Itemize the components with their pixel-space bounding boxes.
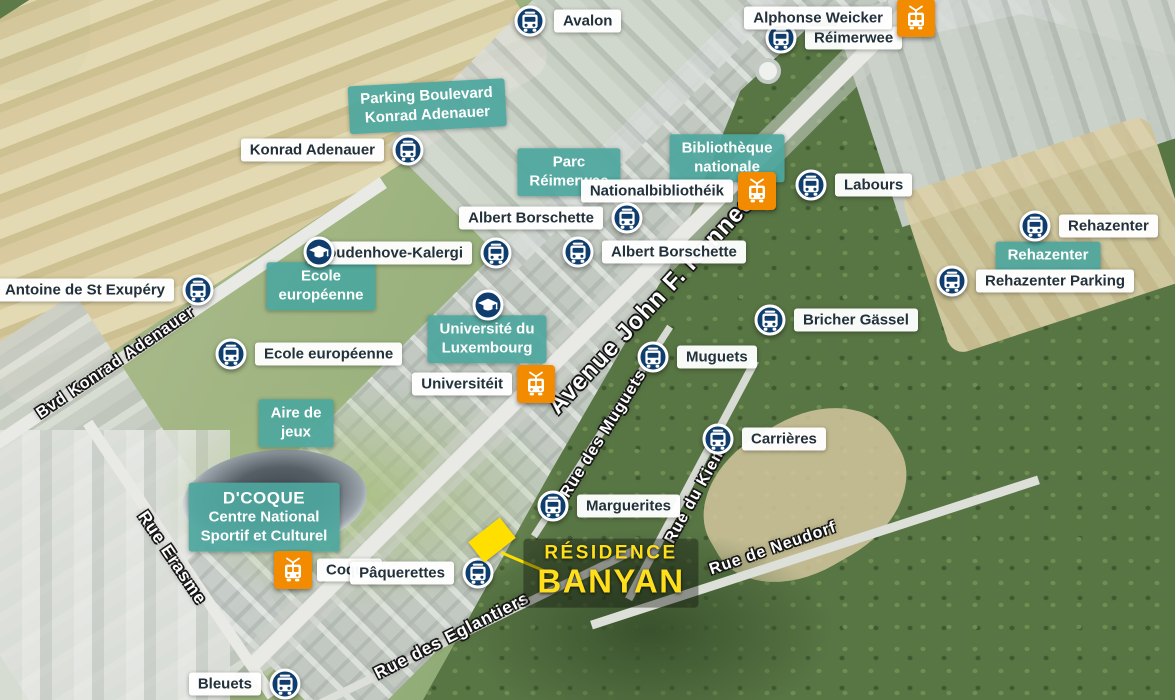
bus-icon: [216, 339, 247, 370]
place-label-line: européenne: [278, 286, 363, 305]
graduation-cap-icon: [473, 290, 504, 321]
tram-icon: [897, 0, 935, 37]
stop-name-label: Pâquerettes: [350, 562, 454, 585]
stop-name-label: Carrières: [742, 428, 826, 451]
aerial-map: AvalonRéimerweeAlphonse WeickerKonrad Ad…: [0, 0, 1175, 700]
stop-name-label: Alphonse Weicker: [744, 7, 892, 30]
stop-name-label: Avalon: [554, 10, 621, 33]
street-label-rue-de-neudorf: Rue de Neudorf: [707, 519, 839, 579]
tram-icon: [274, 551, 312, 589]
place-label-line: D'COQUE: [201, 488, 328, 509]
street-label-rue-des-eglantiers: Rue des Eglantiers: [371, 588, 532, 683]
stop-name-label: Bricher Gässel: [794, 309, 918, 332]
tram-icon: [738, 172, 776, 210]
stop-name-label: Marguerites: [577, 495, 680, 518]
graduation-cap-icon: [304, 237, 335, 268]
stop-name-label: Rehazenter: [1059, 215, 1158, 238]
bus-icon: [538, 491, 569, 522]
stop-name-label: Konrad Adenauer: [241, 139, 384, 162]
bus-icon: [755, 305, 786, 336]
place-label-universite-du-luxembourg: Université duLuxembourg: [427, 315, 546, 363]
stop-name-label: Albert Borschette: [602, 241, 746, 264]
bus-icon: [183, 275, 214, 306]
place-label-line: Sportif et Culturel: [201, 528, 328, 547]
tram-icon: [517, 365, 555, 403]
banyan-word: BANYAN: [537, 565, 684, 600]
bus-icon: [270, 669, 301, 700]
stop-name-label: Albert Borschette: [459, 207, 603, 230]
place-label-d-coque-centre-national-sportif-et-culturel: D'COQUECentre NationalSportif et Culture…: [189, 483, 340, 552]
place-label-line: jeux: [271, 423, 322, 442]
stop-name-label: Muguets: [677, 346, 757, 369]
residence-word: RÉSIDENCE: [537, 543, 684, 565]
place-label-ecole-europeenne-2: Ecoleeuropéenne: [266, 262, 375, 310]
place-label-aire-de-jeux: Aire dejeux: [259, 399, 334, 447]
bus-icon: [481, 238, 512, 269]
place-label-line: Centre National: [201, 509, 328, 528]
place-label-line: Université du: [439, 320, 534, 339]
place-label-line: Aire de: [271, 404, 322, 423]
bus-icon: [612, 203, 643, 234]
place-label-line: Luxembourg: [439, 339, 534, 358]
stop-name-label: Rehazenter Parking: [976, 270, 1134, 293]
stop-name-label: Bleuets: [189, 673, 261, 696]
place-label-parking-boulevard-konrad-adenauer: Parking BoulevardKonrad Adenauer: [348, 78, 507, 134]
stop-name-label: Nationalbibliothéik: [581, 180, 733, 203]
bus-icon: [563, 237, 594, 268]
stop-name-label: Universitéit: [412, 373, 512, 396]
street-label-bvd-konrad-adenauer: Bvd Konrad Adenauer: [33, 303, 198, 423]
bus-icon: [515, 6, 546, 37]
bus-icon: [463, 558, 494, 589]
bus-icon: [703, 424, 734, 455]
stop-name-label: Ecole européenne: [255, 343, 402, 366]
place-label-line: Parc: [529, 153, 608, 172]
bus-icon: [1020, 211, 1051, 242]
place-label-rehazenter-2: Rehazenter: [996, 242, 1101, 271]
bus-icon: [638, 342, 669, 373]
bus-icon: [937, 266, 968, 297]
place-label-line: Ecole: [278, 267, 363, 286]
stop-name-label: Labours: [835, 174, 912, 197]
place-label-line: Bibliothèque: [682, 139, 773, 158]
bus-icon: [796, 170, 827, 201]
bus-icon: [393, 135, 424, 166]
place-label-line: Rehazenter: [1008, 247, 1089, 266]
residence-banyan-label: RÉSIDENCE BANYAN: [523, 539, 698, 608]
stop-name-label: Antoine de St Exupéry: [0, 279, 174, 302]
stop-name-label: Réimerwee: [805, 27, 902, 50]
